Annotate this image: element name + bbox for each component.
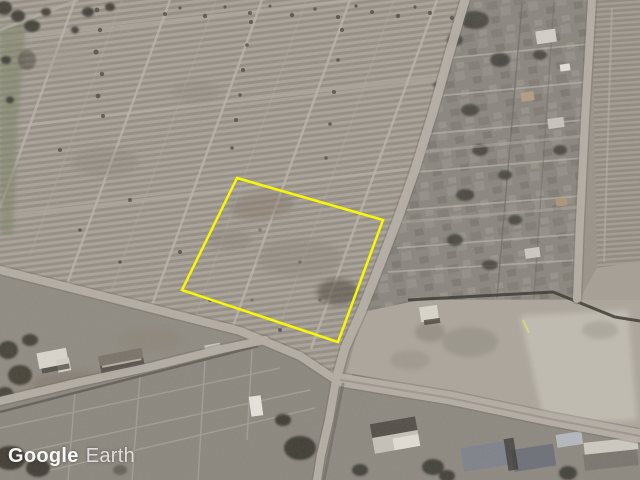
satellite-viewport[interactable]: GoogleEarth — [0, 0, 640, 480]
earth-logo-text: Earth — [86, 445, 135, 467]
satellite-imagery — [0, 0, 640, 480]
google-logo-text: Google — [8, 445, 79, 467]
google-earth-watermark: GoogleEarth — [8, 445, 135, 468]
image-grain-overlay — [0, 0, 640, 480]
